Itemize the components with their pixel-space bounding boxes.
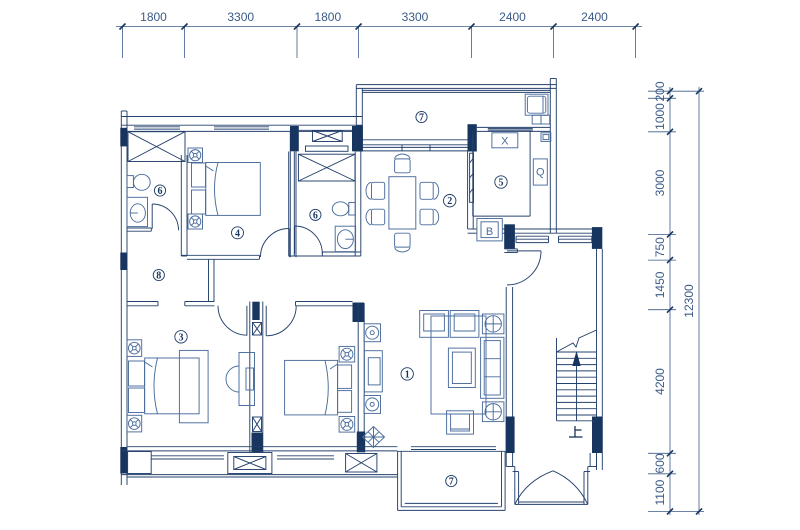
svg-text:750: 750 <box>653 237 667 257</box>
svg-text:6: 6 <box>313 210 318 221</box>
svg-text:200: 200 <box>653 81 667 101</box>
svg-text:1800: 1800 <box>314 10 341 24</box>
svg-text:1000: 1000 <box>653 103 667 130</box>
svg-text:2400: 2400 <box>581 10 608 24</box>
svg-text:3: 3 <box>179 332 184 343</box>
svg-text:7: 7 <box>419 113 424 124</box>
svg-text:Q: Q <box>536 167 545 179</box>
svg-text:2: 2 <box>447 196 452 207</box>
svg-text:X: X <box>501 136 509 148</box>
svg-text:1100: 1100 <box>653 479 667 505</box>
svg-text:600: 600 <box>653 453 667 473</box>
svg-text:3300: 3300 <box>227 10 254 24</box>
svg-text:1450: 1450 <box>653 271 667 298</box>
svg-text:B: B <box>486 226 493 238</box>
svg-text:3300: 3300 <box>402 10 429 24</box>
svg-text:12300: 12300 <box>682 284 696 318</box>
svg-text:1: 1 <box>405 369 410 380</box>
svg-text:2400: 2400 <box>499 10 526 24</box>
svg-text:4: 4 <box>235 228 240 239</box>
svg-text:4200: 4200 <box>653 368 667 395</box>
svg-text:6: 6 <box>158 186 163 197</box>
svg-text:7: 7 <box>449 477 454 488</box>
svg-text:3000: 3000 <box>653 169 667 196</box>
svg-text:1800: 1800 <box>140 10 167 24</box>
svg-text:5: 5 <box>499 178 504 189</box>
svg-text:8: 8 <box>156 271 161 282</box>
